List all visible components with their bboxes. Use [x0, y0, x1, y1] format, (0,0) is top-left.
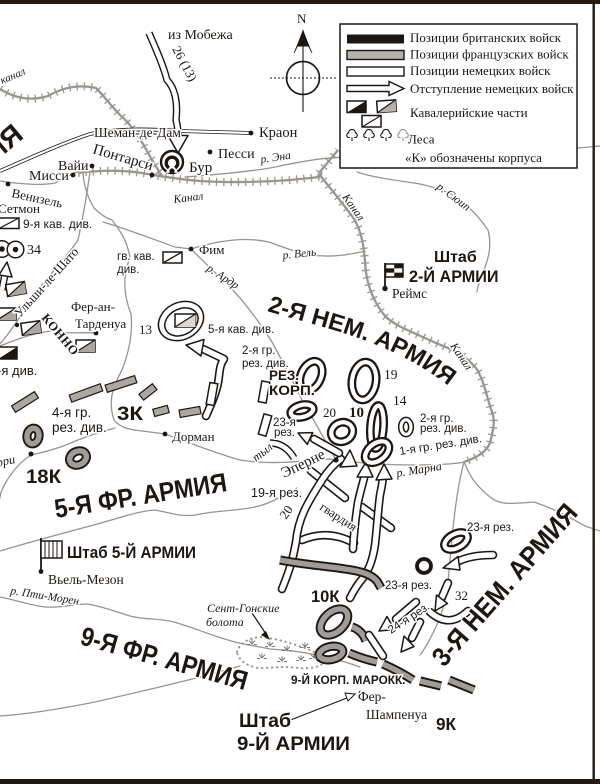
svg-text:див.: див. — [117, 264, 139, 276]
svg-text:14: 14 — [393, 393, 407, 408]
svg-text:9К: 9К — [436, 714, 456, 734]
svg-text:20: 20 — [323, 405, 336, 420]
svg-text:Отступление немецких войск: Отступление немецких войск — [410, 81, 574, 96]
svg-text:10: 10 — [349, 405, 364, 421]
svg-text:Позиции немецких войск: Позиции немецких войск — [410, 63, 551, 78]
svg-text:Леса: Леса — [408, 132, 435, 147]
svg-text:Тарденуа: Тарденуа — [75, 316, 126, 331]
svg-text:гв. кав.: гв. кав. — [117, 251, 155, 263]
svg-text:Позиции британских войск: Позиции британских войск — [410, 30, 562, 45]
svg-text:Кавалерийские части: Кавалерийские части — [410, 105, 528, 120]
svg-text:13: 13 — [139, 322, 152, 337]
svg-text:рез. див.: рез. див. — [420, 423, 467, 435]
svg-text:23-я рез.: 23-я рез. — [467, 522, 514, 534]
svg-text:КОРП.: КОРП. — [269, 383, 315, 398]
svg-text:Штаб: Штаб — [239, 710, 291, 732]
svg-text:2-Й АРМИИ: 2-Й АРМИИ — [409, 267, 499, 286]
svg-text:3К: 3К — [117, 404, 143, 425]
svg-text:32: 32 — [455, 588, 468, 603]
svg-text:Штаб 5-Й АРМИИ: Штаб 5-Й АРМИИ — [67, 543, 196, 562]
svg-text:из Мобежа: из Мобежа — [168, 28, 233, 43]
svg-text:Дорман: Дорман — [172, 429, 215, 444]
svg-text:«К» обозначены корпуса: «К» обозначены корпуса — [405, 150, 542, 165]
svg-text:23-я рез.: 23-я рез. — [385, 580, 432, 592]
svg-text:Вьель-Мезон: Вьель-Мезон — [48, 572, 124, 587]
svg-text:2-я гр.: 2-я гр. — [242, 345, 275, 357]
svg-text:4-я гр.: 4-я гр. — [52, 405, 91, 420]
svg-text:Песси: Песси — [218, 147, 255, 162]
svg-text:9-Й КОРП. МАРОКК.: 9-Й КОРП. МАРОКК. — [291, 673, 405, 687]
svg-text:болота: болота — [206, 615, 244, 629]
svg-text:Сетмон: Сетмон — [0, 201, 40, 216]
svg-text:19: 19 — [384, 367, 398, 382]
svg-text:Шеман-де-Дам: Шеман-де-Дам — [94, 125, 181, 140]
svg-text:Позиции французских войск: Позиции французских войск — [410, 47, 569, 62]
svg-text:34: 34 — [27, 243, 41, 258]
svg-text:Шампенуа: Шампенуа — [366, 707, 427, 722]
svg-text:рез.: рез. — [274, 427, 295, 439]
svg-text:10К: 10К — [311, 588, 340, 606]
svg-text:Сент-Гонские: Сент-Гонские — [207, 601, 280, 615]
svg-text:Штаб: Штаб — [434, 249, 477, 266]
svg-text:РЕЗ.: РЕЗ. — [269, 368, 299, 383]
svg-text:Мисси: Мисси — [29, 169, 69, 184]
svg-text:Бур: Бур — [189, 160, 212, 176]
svg-text:5-я кав. див.: 5-я кав. див. — [208, 324, 274, 336]
svg-text:N: N — [297, 11, 307, 26]
svg-text:18К: 18К — [26, 467, 61, 488]
svg-text:9-я кав. див.: 9-я кав. див. — [23, 217, 92, 231]
svg-text:9-Й АРМИИ: 9-Й АРМИИ — [237, 731, 350, 755]
svg-text:Краон: Краон — [259, 125, 298, 141]
svg-text:19-я рез.: 19-я рез. — [251, 486, 302, 500]
svg-text:Фер-: Фер- — [358, 689, 386, 704]
svg-text:рез. див.: рез. див. — [52, 420, 107, 435]
svg-text:Реймс: Реймс — [392, 286, 427, 301]
svg-text:-я див.: -я див. — [0, 363, 37, 378]
svg-text:Фим: Фим — [199, 242, 224, 257]
svg-text:Фер-ан-: Фер-ан- — [71, 299, 115, 314]
